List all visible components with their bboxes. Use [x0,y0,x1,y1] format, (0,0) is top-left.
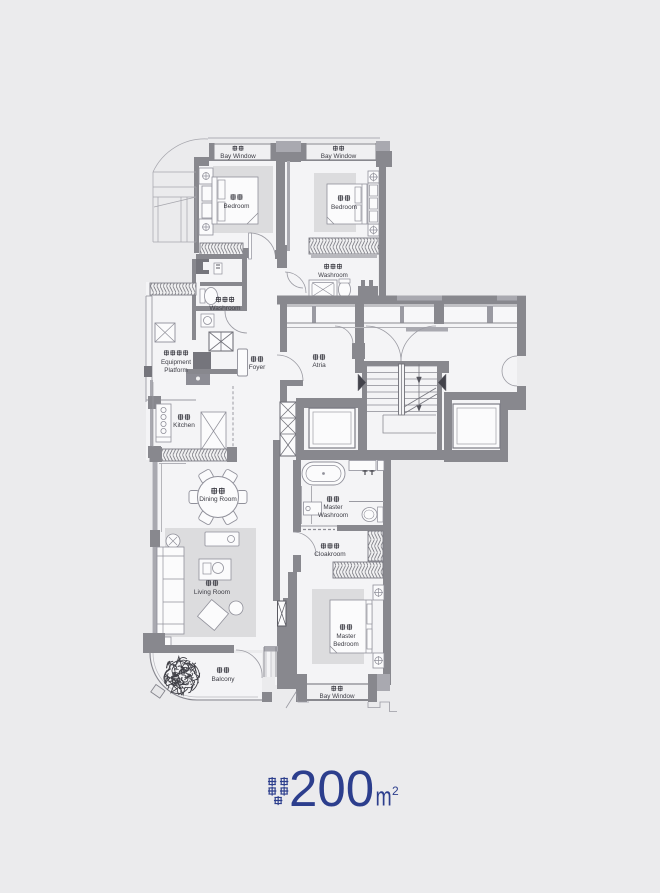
svg-text:Master: Master [336,633,355,640]
svg-text:m: m [376,781,392,811]
svg-text:Bedroom: Bedroom [333,641,359,648]
svg-text:Washroom: Washroom [209,305,240,312]
svg-text:Bedroom: Bedroom [224,203,250,210]
svg-text:Bay Window: Bay Window [321,153,357,160]
svg-text:Platform: Platform [164,367,187,374]
svg-text:Living Room: Living Room [194,589,230,596]
svg-text:Master: Master [323,504,342,511]
svg-text:Balcony: Balcony [211,676,235,683]
svg-text:Dining Room: Dining Room [199,496,237,503]
svg-text:Bay Window: Bay Window [220,153,256,160]
svg-text:2: 2 [392,784,399,798]
svg-text:Equipment: Equipment [161,359,191,366]
svg-text:Kitchen: Kitchen [173,422,195,429]
svg-text:Cloakroom: Cloakroom [314,551,345,558]
svg-text:200: 200 [289,760,374,817]
svg-text:Bedroom: Bedroom [331,204,357,211]
svg-text:Washroom: Washroom [318,512,348,519]
svg-text:Atria: Atria [312,362,326,369]
svg-text:Bay Window: Bay Window [320,693,355,700]
svg-text:Foyer: Foyer [249,364,266,371]
svg-text:Washroom: Washroom [318,272,348,279]
